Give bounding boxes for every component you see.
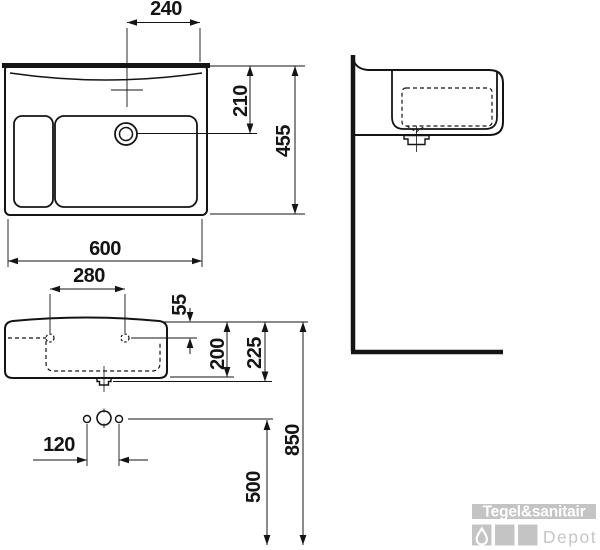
dim-basin-width: 600 <box>8 219 202 267</box>
dim-rim-to-drain-outlet: 225 <box>113 322 272 382</box>
hidden-bowl-outline <box>46 341 160 371</box>
arrow-up-icon <box>292 66 299 76</box>
washbasin-diagram: 240 210 455 600 <box>0 0 600 550</box>
dim-fixing-bolt-spacing: 120 <box>33 424 148 466</box>
arrow-down-icon <box>292 204 299 214</box>
fixing-hole-left <box>84 416 91 423</box>
dim-wall-to-drain: 210 <box>137 66 305 134</box>
arrow-down-icon <box>247 124 254 134</box>
arrow-down-icon <box>264 535 271 545</box>
arrow-down-icon <box>300 535 307 545</box>
rear-ledge-curve <box>10 73 202 80</box>
arrow-left-icon <box>8 258 18 265</box>
side-view <box>351 55 503 352</box>
dim-200-label: 200 <box>207 338 229 370</box>
dim-floor-to-rim: 850 <box>282 322 306 545</box>
dim-240-label: 240 <box>150 0 182 20</box>
dim-600-label: 600 <box>89 238 121 260</box>
dim-455-label: 455 <box>273 125 295 157</box>
arrow-down-icon <box>187 312 194 322</box>
arrow-up-icon <box>300 322 307 332</box>
arrow-up-icon <box>224 322 231 332</box>
shelf-compartment <box>14 116 53 207</box>
watermark-depot-text: Depot <box>543 527 597 547</box>
wall-edge-bar <box>2 63 210 68</box>
dim-120-label: 120 <box>43 434 75 456</box>
dim-basin-depth: 455 <box>210 66 305 214</box>
mounting-hole-left <box>46 334 54 342</box>
front-view <box>5 318 167 429</box>
arrow-right-icon <box>190 19 200 26</box>
dim-tap-offset: 240 <box>127 0 200 107</box>
mounting-hole-right <box>121 334 129 342</box>
arrow-up-icon <box>247 66 254 76</box>
drain-outer-circle <box>115 123 137 145</box>
dim-210-label: 210 <box>230 85 252 117</box>
arrow-down-icon <box>224 367 231 377</box>
dim-225-label: 225 <box>244 337 266 369</box>
dim-850-label: 850 <box>282 424 304 456</box>
dim-mounting-hole-spacing: 280 <box>50 265 125 333</box>
dim-280-label: 280 <box>73 265 105 287</box>
arrow-right-icon <box>192 258 202 265</box>
watermark-brand-text: Tegel&sanitair <box>483 504 586 521</box>
front-view-outline <box>5 318 167 379</box>
top-view <box>2 63 210 215</box>
dim-500-label: 500 <box>243 471 265 503</box>
arrow-up-icon <box>264 420 271 430</box>
arrow-right-icon <box>77 457 87 464</box>
arrow-left-icon <box>50 286 60 293</box>
arrow-up-icon <box>262 322 269 332</box>
arrow-left-icon <box>127 19 137 26</box>
arrow-right-icon <box>115 286 125 293</box>
bowl-outline <box>55 116 197 207</box>
top-view-outline <box>5 65 207 215</box>
drain-inner-circle <box>120 128 133 141</box>
inner-bowl-edge <box>392 70 497 129</box>
hidden-bowl-dashed <box>402 88 492 126</box>
technical-drawing-canvas: 240 210 455 600 <box>0 0 600 550</box>
fixing-hole-right <box>116 416 123 423</box>
fixing-hole-center <box>97 411 111 425</box>
dim-floor-to-fixing-holes: 500 <box>128 419 273 545</box>
arrow-left-icon <box>119 457 129 464</box>
watermark-square-2 <box>495 525 515 546</box>
watermark: Tegel&sanitair Depot <box>472 504 597 548</box>
arrow-down-icon <box>262 372 269 382</box>
arrow-up-icon <box>187 338 194 348</box>
dim-rim-to-body-bottom: 200 <box>170 322 234 377</box>
watermark-square-3 <box>518 525 538 546</box>
side-view-outline <box>353 58 503 135</box>
